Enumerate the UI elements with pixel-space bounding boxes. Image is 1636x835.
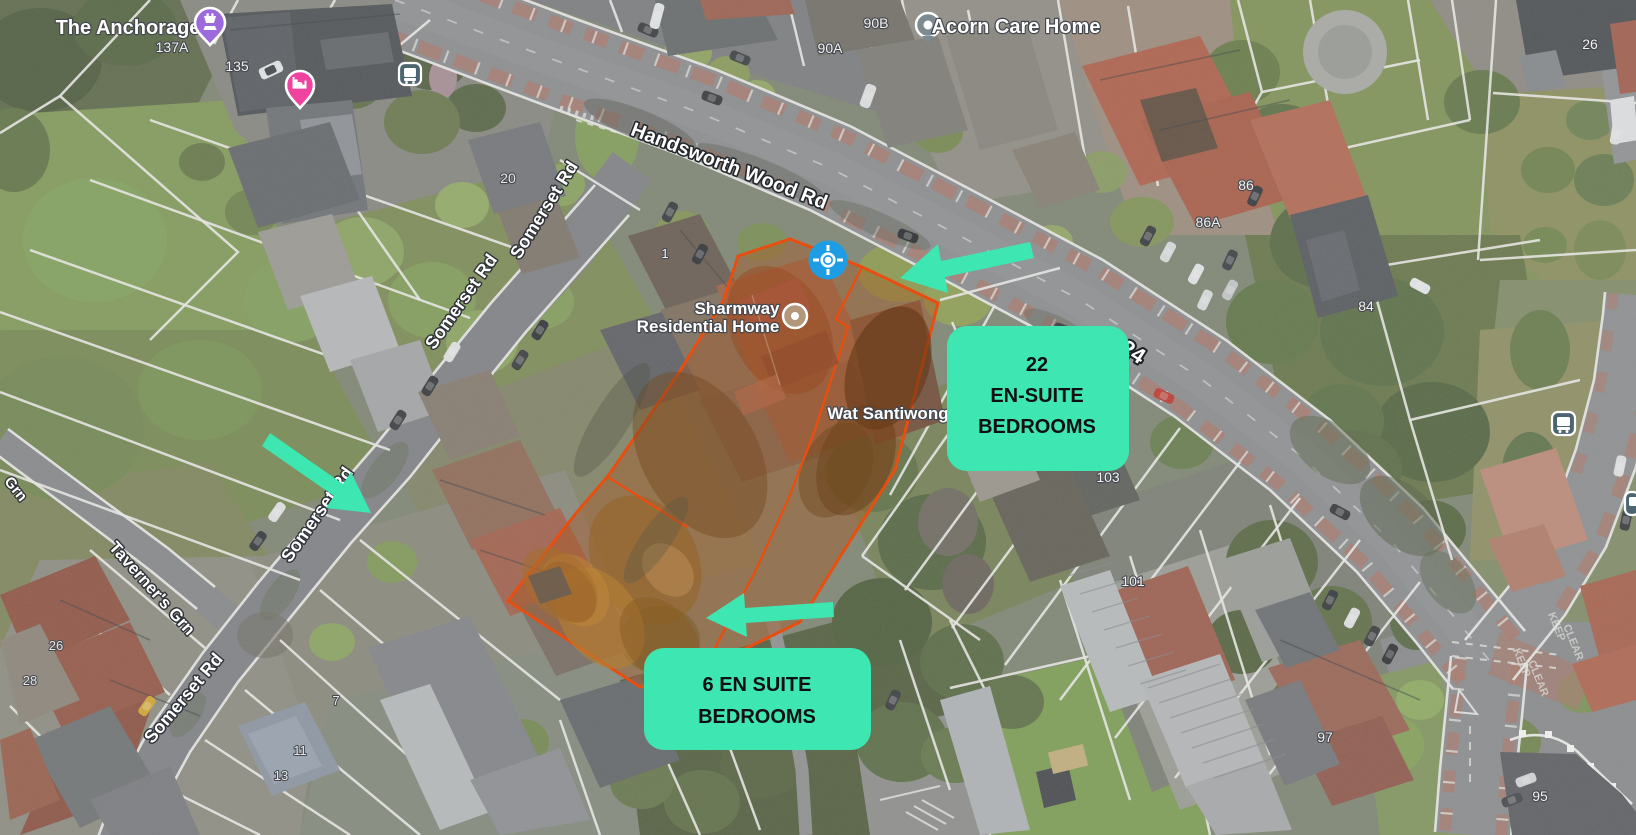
svg-text:EN-SUITE: EN-SUITE xyxy=(990,385,1083,407)
svg-text:26: 26 xyxy=(1582,36,1598,52)
svg-text:103: 103 xyxy=(1096,469,1120,485)
svg-text:Wat Santiwong: Wat Santiwong xyxy=(827,404,948,423)
svg-text:7: 7 xyxy=(332,693,339,708)
svg-text:13: 13 xyxy=(274,768,288,783)
svg-text:BEDROOMS: BEDROOMS xyxy=(978,416,1096,438)
svg-text:135: 135 xyxy=(225,58,249,74)
svg-text:1: 1 xyxy=(661,246,668,261)
svg-text:101: 101 xyxy=(1121,573,1145,589)
svg-text:86A: 86A xyxy=(1196,214,1222,230)
svg-text:The Anchorage: The Anchorage xyxy=(56,17,201,39)
svg-text:Residential Home: Residential Home xyxy=(637,317,780,336)
svg-text:Sharmway: Sharmway xyxy=(694,299,780,318)
svg-text:28: 28 xyxy=(23,673,37,688)
svg-text:22: 22 xyxy=(1026,354,1048,376)
svg-text:97: 97 xyxy=(1317,729,1333,745)
svg-text:Acorn Care Home: Acorn Care Home xyxy=(932,16,1101,38)
svg-text:137A: 137A xyxy=(156,39,189,55)
svg-text:26: 26 xyxy=(49,638,63,653)
svg-text:95: 95 xyxy=(1532,788,1548,804)
svg-text:86: 86 xyxy=(1238,177,1254,193)
svg-text:90A: 90A xyxy=(818,40,844,56)
svg-text:6 EN SUITE: 6 EN SUITE xyxy=(703,674,812,696)
svg-text:20: 20 xyxy=(500,170,516,186)
svg-text:90B: 90B xyxy=(864,15,889,31)
svg-text:11: 11 xyxy=(293,743,307,758)
svg-text:BEDROOMS: BEDROOMS xyxy=(698,706,816,728)
svg-text:84: 84 xyxy=(1358,298,1374,314)
